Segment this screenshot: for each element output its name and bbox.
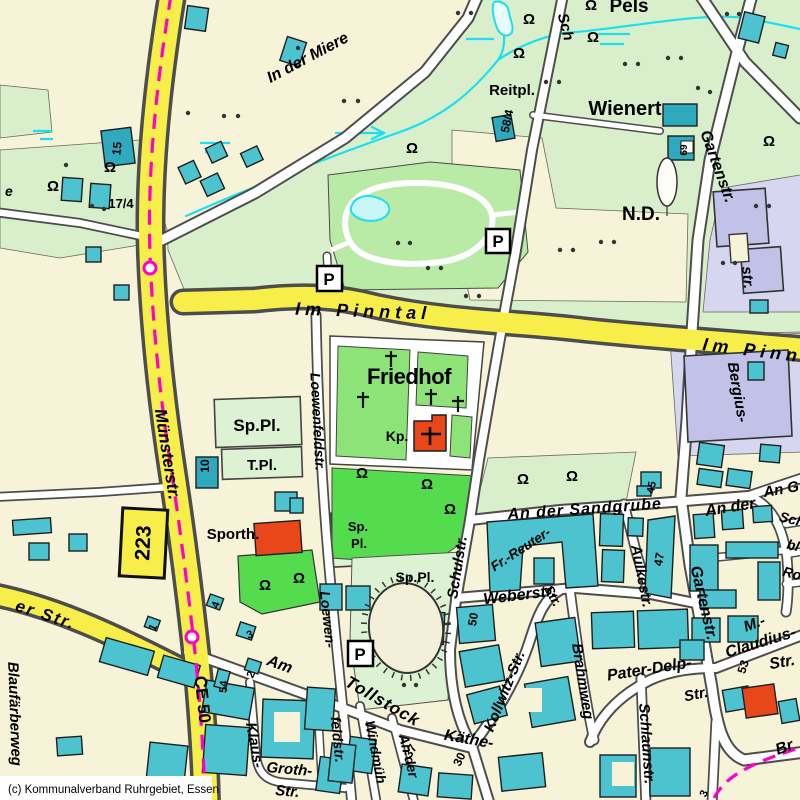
street-label-str-partial: str.	[738, 266, 757, 290]
parking-icon: P	[348, 641, 373, 666]
tree-icon: Ω	[406, 140, 418, 157]
tree-icon: Ω	[585, 0, 597, 14]
parking-letter: P	[323, 270, 334, 289]
parcel-number: 15	[109, 141, 124, 156]
area-label-nd: N.D.	[622, 204, 660, 225]
street-label-klaus-str: Str.	[275, 782, 301, 800]
parking-letter: P	[492, 232, 503, 251]
area-label-wienert: Wienert	[588, 98, 662, 120]
area-label-kp: Kp.	[386, 428, 409, 444]
route-node-icon	[144, 262, 156, 274]
copyright: (c) Kommunalverband Ruhrgebiet, Essen	[0, 776, 219, 800]
house-number: 69	[679, 144, 690, 156]
copyright-text: (c) Kommunalverband Ruhrgebiet, Essen	[8, 784, 219, 796]
area-label-pels: Pels	[609, 0, 648, 17]
tree-icon: Ω	[513, 45, 525, 62]
tree-icon: Ω	[566, 468, 578, 485]
area-label-sporth: Sporth.	[207, 526, 260, 543]
house-number: 54	[218, 679, 231, 693]
area-label-sppl-stadium: Sp.Pl.	[396, 569, 435, 585]
parking-icon: P	[486, 229, 510, 253]
tree-icon: Ω	[47, 178, 59, 195]
sports-hall-building	[254, 520, 302, 555]
tree-icon: Ω	[293, 570, 305, 587]
area-label-sppl: Sp.Pl.	[233, 416, 280, 435]
house-number: 47	[651, 551, 667, 567]
parking-icon: P	[317, 266, 342, 291]
nd-monument	[657, 158, 677, 206]
tree-icon: Ω	[259, 577, 271, 594]
tree-icon: Ω	[523, 11, 535, 28]
city-map: P P P 223 Ω Ω Ω Ω Ω Ω Ω Ω Ω Ω Ω Ω Ω Ω Ω	[0, 0, 800, 800]
area-label-sp: Sp.	[348, 519, 368, 534]
park-pond	[351, 196, 390, 221]
parking-letter: P	[354, 645, 365, 664]
tree-icon: Ω	[763, 133, 775, 150]
tree-icon: Ω	[587, 29, 599, 46]
street-label-bl-partial: bl	[785, 536, 800, 555]
route-badge-223: 223	[119, 508, 167, 578]
area-label-friedhof: Friedhof	[367, 364, 452, 389]
tree-icon: Ω	[421, 476, 433, 493]
house-number: 10	[198, 459, 212, 473]
tree-icon: Ω	[104, 159, 116, 176]
house-number: 45	[645, 480, 659, 494]
area-label-tpl: T.Pl.	[247, 457, 277, 474]
street-label-blaufaerberweg: Blaufärberweg	[4, 661, 25, 766]
route-node-icon	[186, 631, 198, 643]
parcel-number: 17/4	[108, 196, 134, 211]
street-label-partial-e: e	[5, 183, 13, 199]
tree-icon: Ω	[517, 471, 529, 488]
cemetery-block	[450, 415, 472, 458]
green-sporth	[238, 550, 320, 614]
house-number: 50	[465, 611, 481, 627]
route-badge-label: 223	[131, 525, 156, 561]
tree-icon: Ω	[444, 501, 456, 518]
area-label-reitpl: Reitpl.	[489, 82, 535, 99]
tree-icon: Ω	[356, 465, 368, 482]
area-label-pl: Pl.	[351, 536, 367, 551]
